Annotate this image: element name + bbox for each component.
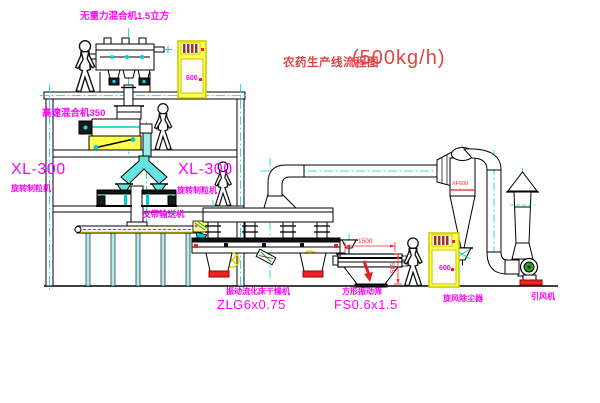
label-granulator-left-name: 旋转制粒机 bbox=[11, 185, 51, 193]
worker-figure-roof bbox=[76, 41, 95, 92]
label-granulator-right-model: XL-300 bbox=[178, 162, 233, 178]
worker-figure-ground bbox=[404, 238, 422, 286]
granulator-right bbox=[141, 190, 177, 206]
worker-figure-floor2 bbox=[155, 104, 172, 150]
label-granulator-left-model: XL-300 bbox=[11, 162, 66, 178]
label-dryer-name: 振动流化床干燥机 bbox=[226, 288, 290, 296]
cabinet-a-display: 600 bbox=[186, 75, 198, 82]
label-sieve-model: FS0.6x1.5 bbox=[334, 298, 398, 311]
belt-conveyor bbox=[75, 226, 203, 286]
flow-diagram-canvas: 农药生产线流程图 (500kg/h) 无重力混合机1.5立方 高速混合机350 … bbox=[0, 0, 600, 403]
cyclone-model-mark: XF600 bbox=[452, 182, 468, 188]
label-cyclone: 旋风除尘器 bbox=[443, 295, 483, 303]
control-cabinet-a bbox=[178, 41, 206, 98]
label-induced-fan: 引风机 bbox=[531, 293, 555, 301]
dim-sieve-height: 545 bbox=[388, 263, 394, 273]
dryer-hood-stubs bbox=[205, 222, 330, 238]
fluid-bed-dryer bbox=[192, 208, 352, 277]
label-high-speed-mixer: 高速混合机350 bbox=[42, 109, 105, 119]
label-gravity-free-mixer: 无重力混合机1.5立方 bbox=[80, 12, 169, 22]
label-granulator-right-name: 旋转制粒机 bbox=[177, 187, 217, 195]
dim-sieve-length: 1500 bbox=[358, 239, 372, 246]
diagram-title-capacity: (500kg/h) bbox=[352, 47, 446, 70]
exhaust-duct bbox=[264, 152, 452, 208]
square-vibrating-sieve bbox=[333, 240, 409, 287]
granulator-left bbox=[96, 190, 132, 206]
cabinet-b-display: 600 bbox=[439, 265, 451, 272]
induced-draft-fan bbox=[505, 259, 542, 286]
y-splitter-chute bbox=[115, 156, 168, 190]
control-cabinet-b bbox=[429, 233, 459, 287]
label-sieve-name: 方形振动筛 bbox=[342, 288, 382, 296]
label-belt-conveyor: 皮带输送机 bbox=[142, 210, 185, 219]
label-dryer-model: ZLG6x0.75 bbox=[217, 298, 286, 311]
